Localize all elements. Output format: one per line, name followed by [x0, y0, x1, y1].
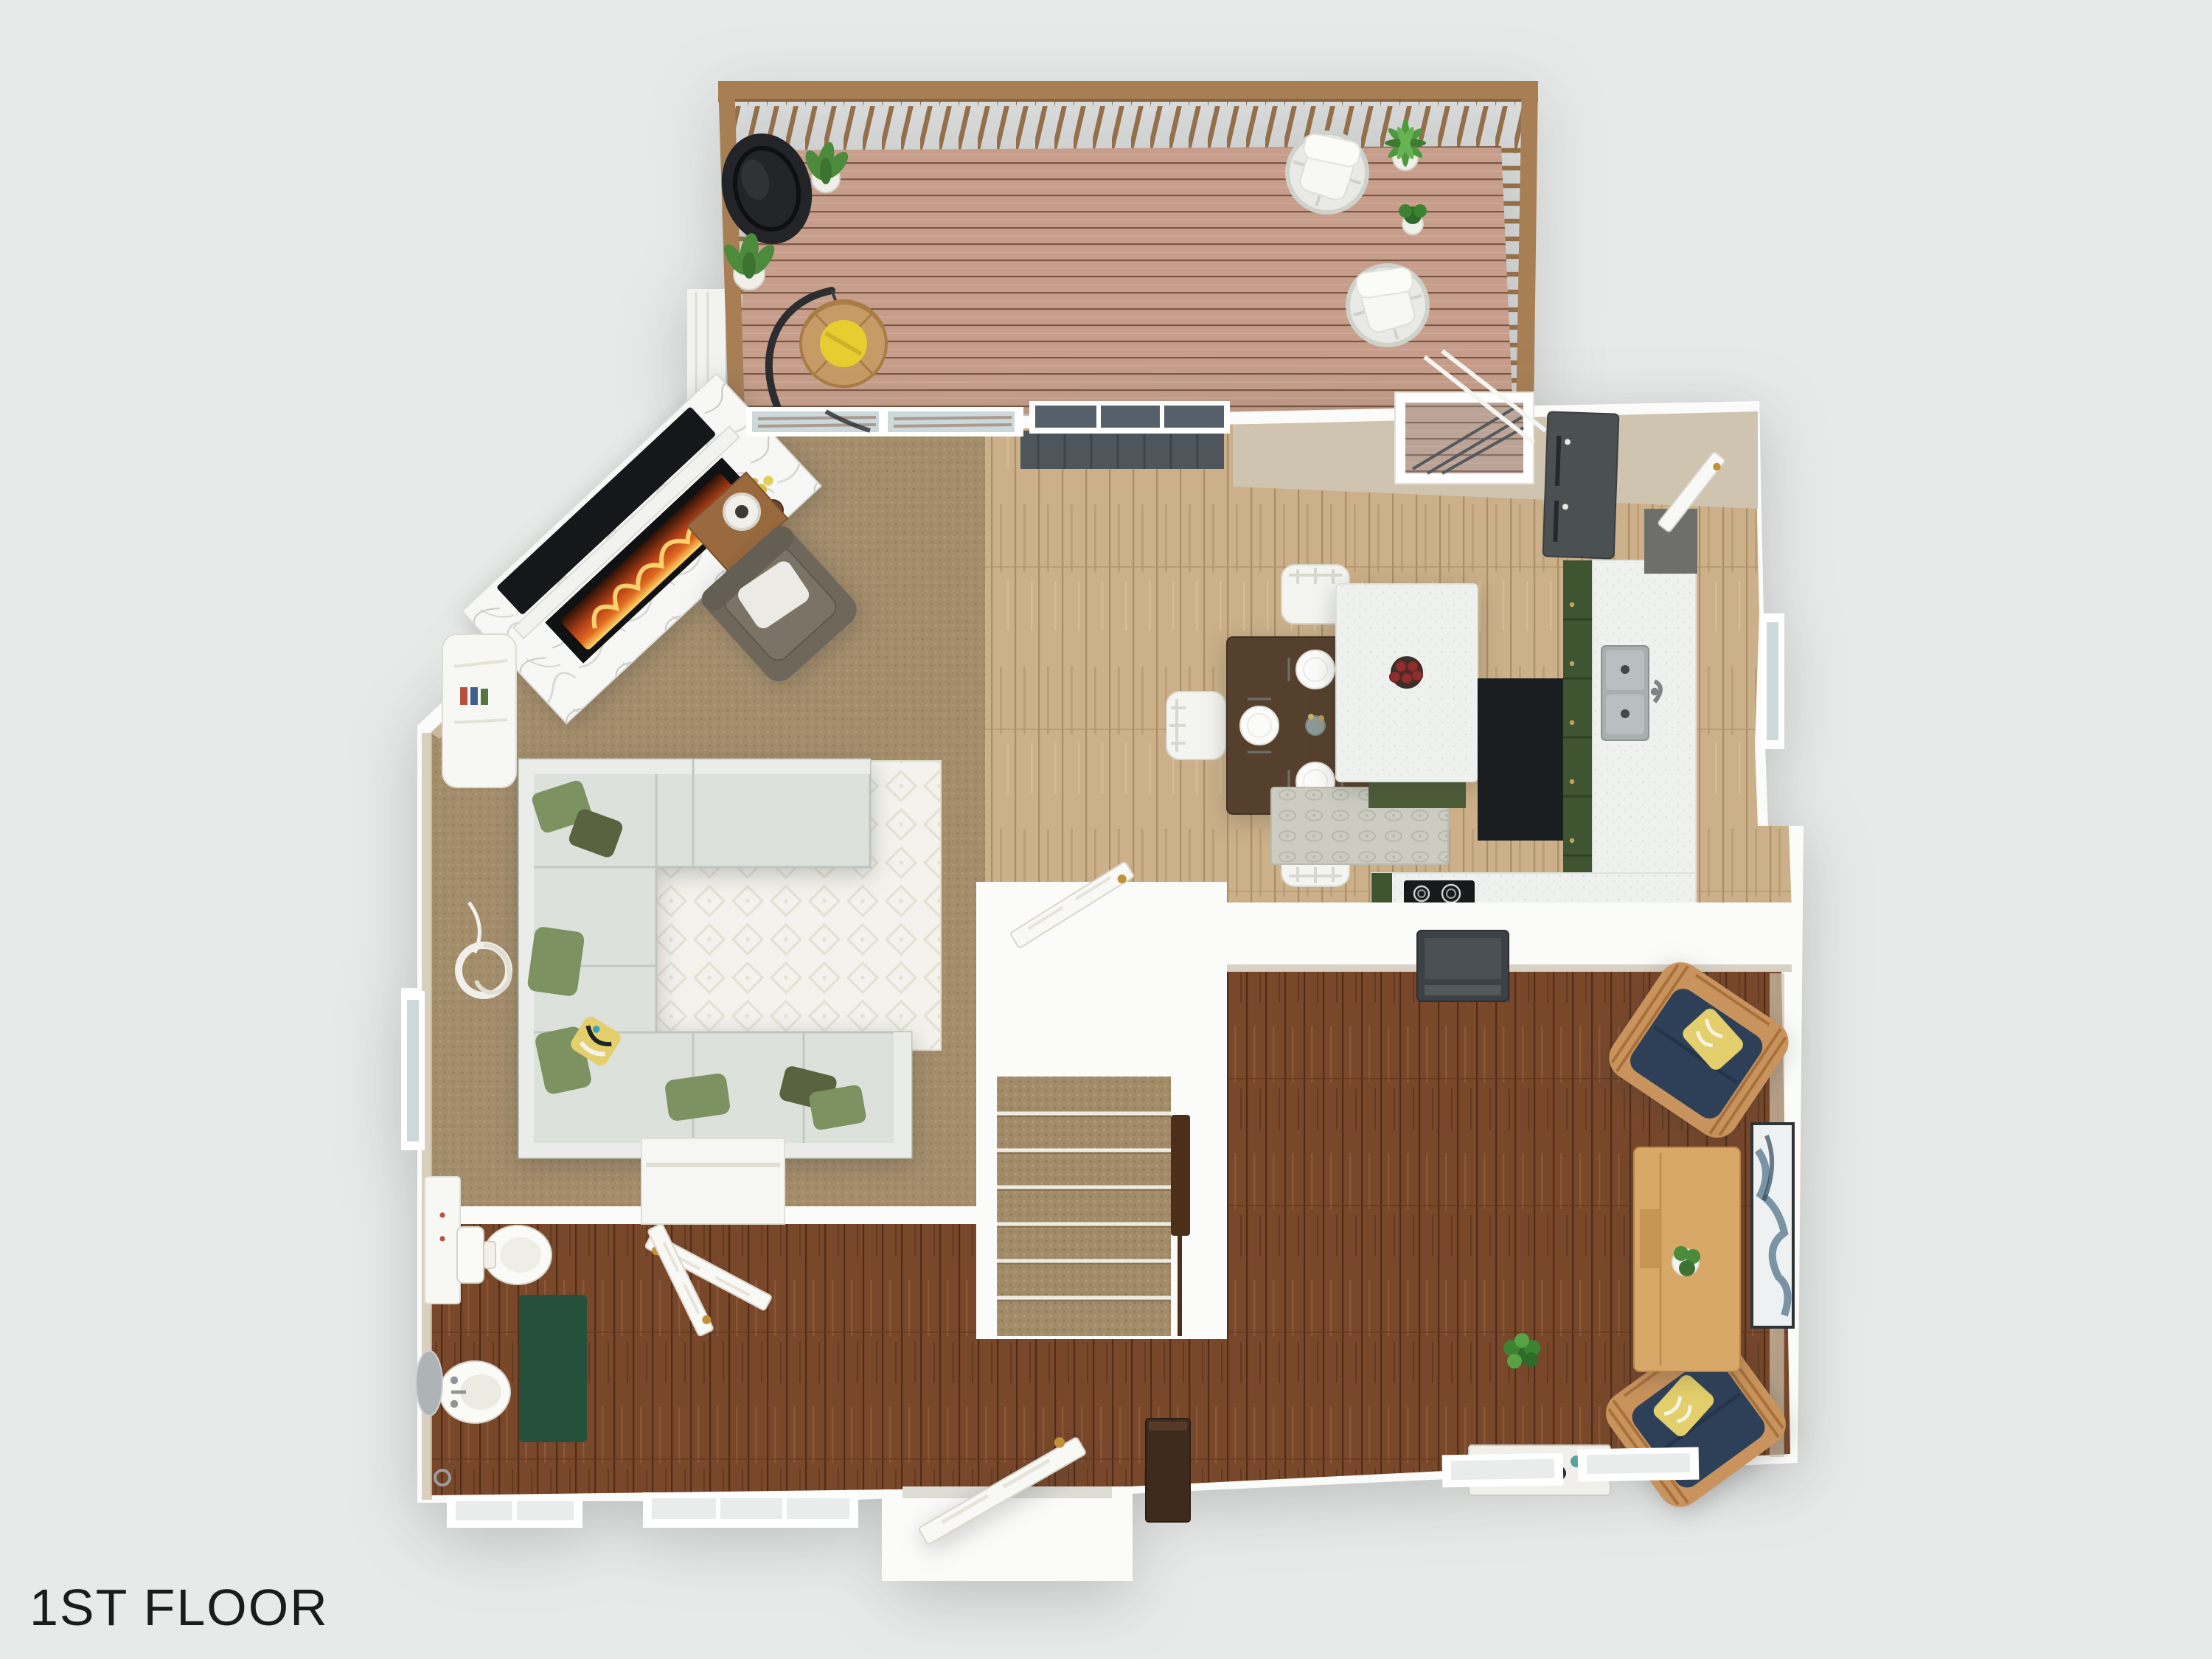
family-room-tv — [1417, 931, 1509, 1001]
porch-wall-right — [1109, 1486, 1133, 1581]
pedestal-sink — [439, 1361, 510, 1423]
shoe-cabinet — [1146, 1419, 1190, 1522]
interior — [401, 351, 1797, 1581]
window-kitchen-right — [1767, 622, 1778, 740]
deck — [687, 81, 1538, 445]
deck-railing-top — [718, 81, 1538, 102]
refrigerator — [1543, 411, 1619, 558]
window-family-2 — [1587, 1453, 1690, 1474]
stairwell — [976, 861, 1227, 1339]
window-living-2 — [888, 411, 1015, 432]
sliding-glass-door — [1035, 406, 1224, 428]
black-counter — [1478, 678, 1563, 841]
toilet — [457, 1225, 552, 1284]
dining-chair — [1166, 692, 1225, 759]
bathroom-wall — [431, 1206, 641, 1224]
table-lamp — [724, 494, 759, 529]
entry-mat-dark — [1020, 431, 1224, 469]
round-mirror — [416, 1351, 442, 1416]
floor-plan-canvas — [0, 0, 2212, 1659]
window-family-1 — [1451, 1459, 1554, 1480]
window-hall — [652, 1498, 849, 1519]
white-console — [442, 634, 516, 787]
floor-label: 1ST FLOOR — [29, 1578, 329, 1637]
closet — [641, 1138, 785, 1224]
window-living-left — [407, 1000, 419, 1141]
leaning-wall-art — [1752, 1124, 1793, 1327]
newel-post — [1171, 1115, 1190, 1236]
bathroom-rug — [519, 1295, 587, 1442]
wood-desk-console — [1634, 1147, 1740, 1371]
porch-wall-left — [882, 1489, 905, 1581]
